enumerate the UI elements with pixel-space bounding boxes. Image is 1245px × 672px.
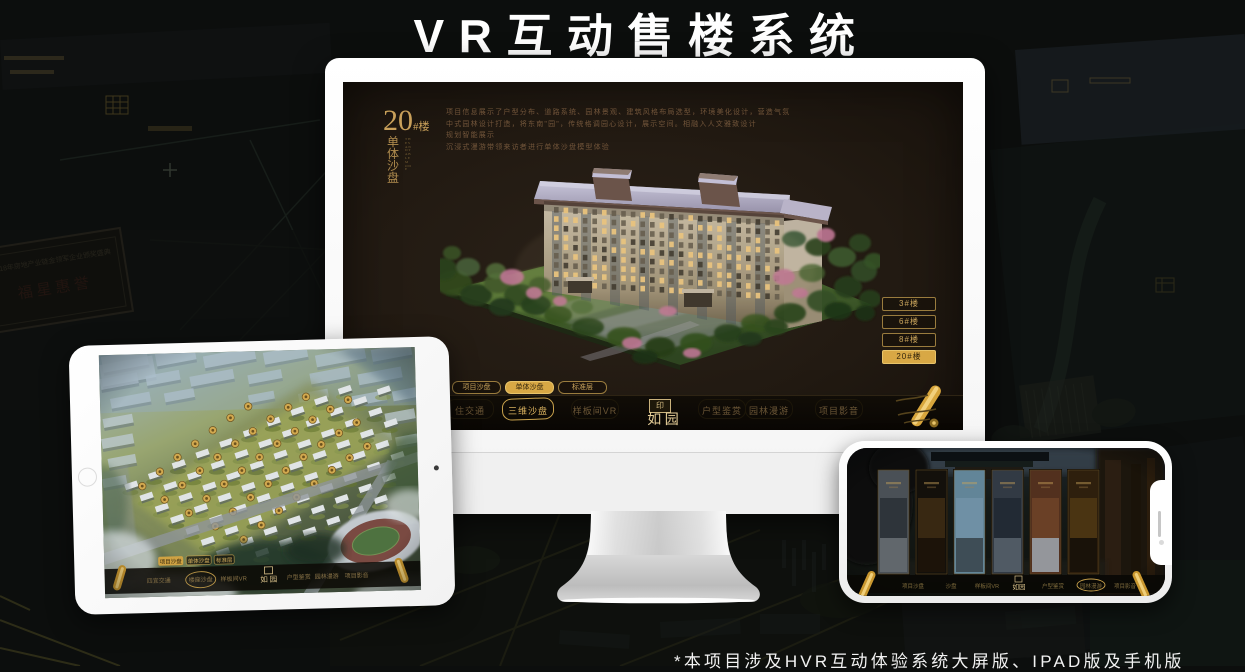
svg-text:沙盘: 沙盘 (945, 582, 957, 590)
svg-text:户型鉴赏: 户型鉴赏 (1042, 582, 1065, 590)
svg-text:园林漫游: 园林漫游 (1080, 582, 1103, 590)
svg-text:项目沙盘: 项目沙盘 (902, 582, 925, 590)
svg-text:项目影音: 项目影音 (1114, 582, 1137, 590)
svg-text:如园: 如园 (1013, 582, 1026, 591)
svg-text:样板间VR: 样板间VR (975, 582, 999, 590)
